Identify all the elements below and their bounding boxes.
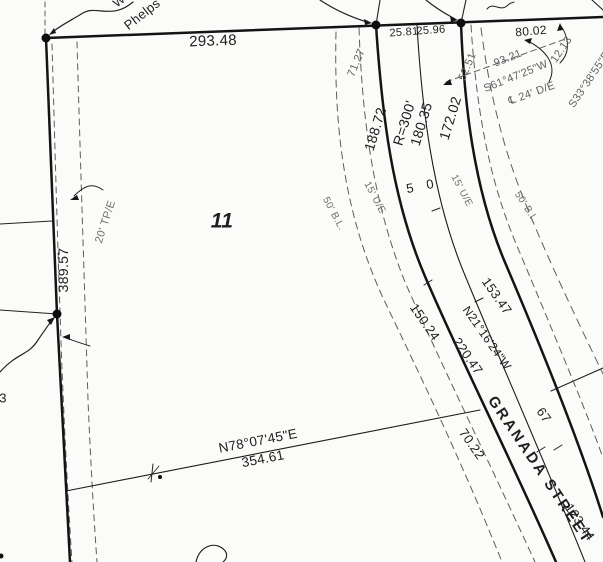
lot-number: 11 [211,211,233,232]
dim-top-segment-1: 25.81 [389,27,419,40]
plat-map: 293.48 Phelps W 25.81 25.96 80.02 71.27 … [0,0,603,562]
dim-top-segment-2: 25.96 [416,25,446,38]
dim-north-boundary: 293.48 [189,33,237,50]
dim-west-boundary: 389.57 [56,248,70,293]
dim-top-segment-3: 80.02 [515,24,547,39]
partial-lot-number-west: 3 [0,392,7,405]
west-boundary [46,38,70,562]
thin-survey-lines [66,25,585,562]
